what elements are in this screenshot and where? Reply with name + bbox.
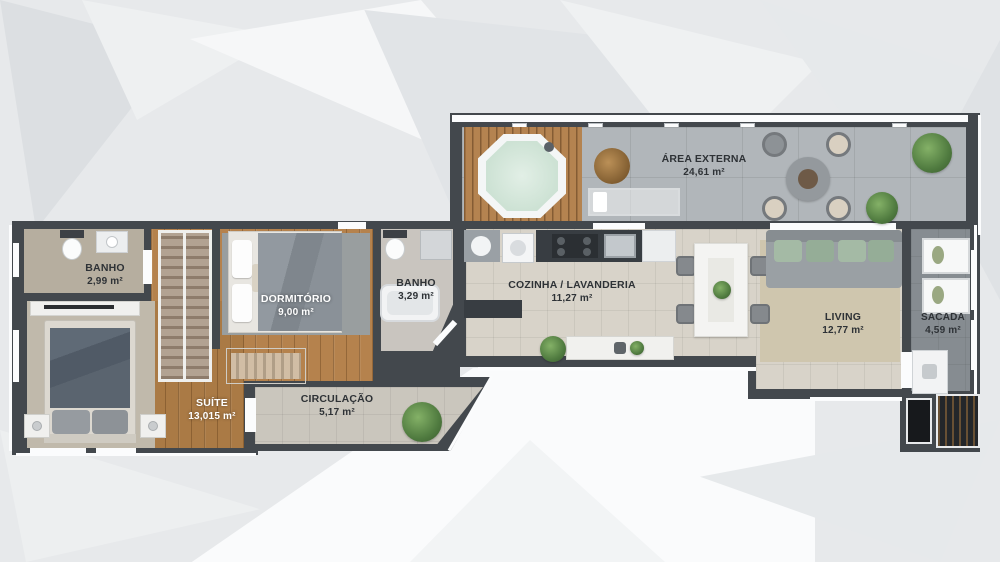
- toilet: [60, 230, 84, 238]
- outdoor-chair: [826, 196, 851, 221]
- jacuzzi-jet: [544, 142, 554, 152]
- room-label-cozinha: COZINHA / LAVANDERIA 11,27 m²: [492, 279, 652, 305]
- service-box: [906, 398, 932, 444]
- room-area: 11,27 m²: [492, 292, 652, 305]
- cooktop-burner: [583, 248, 591, 256]
- sacada-lounge-pillow: [932, 286, 944, 304]
- cooktop-burner: [557, 237, 565, 245]
- room-area: 3,29 m²: [346, 290, 486, 303]
- room-label-suite: SUÍTE 13,015 m²: [142, 397, 282, 423]
- room-label-sacada: SACADA 4,59 m²: [873, 311, 1000, 337]
- floorplan-render: BANHO 2,99 m² DORMITÓRIO 9,00 m² BANHO 3…: [0, 0, 1000, 562]
- plant: [912, 133, 952, 173]
- suite-bed-blanket: [50, 328, 130, 408]
- sofa-cushion: [838, 240, 866, 262]
- suite-bed-pillow: [92, 410, 128, 434]
- room-area: 4,59 m²: [873, 324, 1000, 337]
- window-sacada-right: [971, 250, 977, 310]
- wall-corridor-dormitorio: [212, 229, 220, 349]
- room-label-banho2: BANHO 3,29 m²: [346, 277, 486, 303]
- door-dormitorio: [338, 222, 366, 229]
- room-area: 9,00 m²: [226, 306, 366, 319]
- room-name: BANHO: [346, 277, 486, 290]
- plant: [630, 341, 644, 355]
- dresser: [226, 348, 306, 384]
- sacada-lounge-pillow: [932, 246, 944, 264]
- window-left-banho: [13, 243, 19, 277]
- room-area: 13,015 m²: [142, 410, 282, 423]
- room-area: 5,17 m²: [267, 406, 407, 419]
- room-label-banho1: BANHO 2,99 m²: [35, 262, 175, 288]
- window-strip: [452, 115, 968, 122]
- cooktop-burner: [583, 237, 591, 245]
- sacada-sink: [922, 364, 937, 379]
- dining-chair: [676, 256, 696, 276]
- room-name: ÁREA EXTERNA: [634, 153, 774, 166]
- outdoor-ottoman: [594, 148, 630, 184]
- shower-box: [420, 230, 452, 260]
- dining-chair: [750, 304, 770, 324]
- room-label-circulacao: CIRCULAÇÃO 5,17 m²: [267, 393, 407, 419]
- nightstand-lamp: [32, 421, 42, 431]
- toilet-bowl: [62, 238, 82, 260]
- buffet-decor: [614, 342, 626, 354]
- sofa-cushion: [774, 240, 802, 262]
- kitchen-cabinet-white: [642, 230, 676, 262]
- room-name: BANHO: [35, 262, 175, 275]
- plant: [866, 192, 898, 224]
- room-area: 24,61 m²: [634, 166, 774, 179]
- outer-trim-suite-bottom: [16, 453, 256, 456]
- room-name: COZINHA / LAVANDERIA: [492, 279, 652, 292]
- room-name: SACADA: [873, 311, 1000, 324]
- bed-pillow: [232, 240, 252, 278]
- sun-lounger-pillow: [593, 192, 607, 212]
- sofa-cushion: [806, 240, 834, 262]
- dining-chair: [676, 304, 696, 324]
- bathroom-sink-basin: [106, 236, 118, 248]
- room-name: CIRCULAÇÃO: [267, 393, 407, 406]
- outdoor-chair: [826, 132, 851, 157]
- room-name: SUÍTE: [142, 397, 282, 410]
- sacada-lounge-chair: [922, 238, 970, 274]
- room-label-dormitorio: DORMITÓRIO 9,00 m²: [226, 293, 366, 319]
- tv: [44, 305, 114, 309]
- washing-machine-drum: [510, 240, 526, 256]
- outer-trim-left: [9, 225, 12, 451]
- kitchen-sink-steel: [604, 234, 636, 258]
- door-sacada: [901, 352, 912, 388]
- toilet: [383, 230, 407, 238]
- room-label-area-externa: ÁREA EXTERNA 24,61 m²: [634, 153, 774, 179]
- cooktop-burner: [557, 248, 565, 256]
- suite-headboard: [44, 434, 136, 443]
- sacada-lounge-chair: [922, 278, 970, 314]
- outer-trim-living-bottom: [810, 397, 902, 401]
- sofa-cushion: [868, 240, 894, 262]
- window-left-suite: [13, 330, 19, 382]
- outdoor-table-center: [798, 169, 818, 189]
- plant: [540, 336, 566, 362]
- outer-trim-kitchen-bottom: [478, 367, 758, 371]
- service-box-grill: [936, 394, 980, 448]
- toilet-bowl: [385, 238, 405, 260]
- outer-trim-externa-right: [978, 115, 981, 235]
- suite-bed-pillow: [52, 410, 90, 434]
- window-kitchen-top: [593, 223, 645, 229]
- room-name: DORMITÓRIO: [226, 293, 366, 306]
- wardrobe-divider: [183, 232, 186, 380]
- dining-centerpiece: [713, 281, 731, 299]
- kitchen-sink-left: [471, 236, 491, 256]
- plant: [402, 402, 442, 442]
- outdoor-chair: [762, 196, 787, 221]
- room-area: 2,99 m²: [35, 275, 175, 288]
